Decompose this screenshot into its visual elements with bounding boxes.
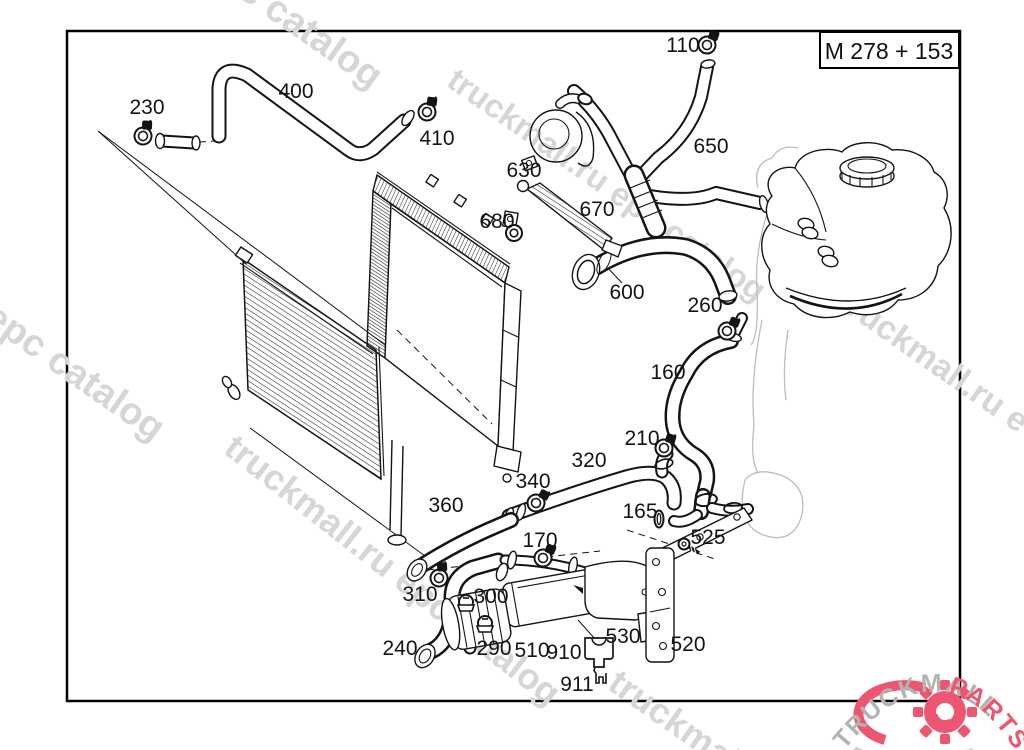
- part-label-630[interactable]: 630: [506, 159, 541, 182]
- part-label-290[interactable]: 290: [476, 637, 511, 660]
- part-label-600[interactable]: 600: [609, 281, 644, 304]
- part-label-910[interactable]: 910: [546, 641, 581, 664]
- part-label-650[interactable]: 650: [693, 135, 728, 158]
- part-label-400[interactable]: 400: [278, 80, 313, 103]
- part-label-680[interactable]: 680: [479, 210, 514, 233]
- part-label-340[interactable]: 340: [515, 470, 550, 493]
- part-label-170[interactable]: 170: [522, 529, 557, 552]
- title-box: M 278 + 153: [820, 32, 959, 68]
- part-label-520[interactable]: 520: [670, 633, 705, 656]
- part-label-165[interactable]: 165: [622, 500, 657, 523]
- part-label-310[interactable]: 310: [402, 583, 437, 606]
- clip-icon: [458, 595, 474, 611]
- clip-icon: [477, 616, 493, 632]
- part-label-300[interactable]: 300: [473, 585, 508, 608]
- part-label-230[interactable]: 230: [129, 96, 164, 119]
- engine-code: M 278 + 153: [825, 38, 954, 64]
- part-label-320[interactable]: 320: [571, 449, 606, 472]
- part-label-210[interactable]: 210: [624, 427, 659, 450]
- epc-diagram-page: epc catalogtruckmall.ru epc catalogl epc…: [0, 0, 1024, 750]
- part-label-110[interactable]: 110: [666, 34, 699, 57]
- part-label-525[interactable]: 525: [690, 526, 725, 549]
- part-label-510[interactable]: 510: [514, 639, 549, 662]
- part-label-240[interactable]: 240: [382, 637, 417, 660]
- part-label-360[interactable]: 360: [428, 494, 463, 517]
- part-label-260[interactable]: 260: [687, 294, 722, 317]
- part-label-911[interactable]: 911: [560, 673, 593, 696]
- part-label-670[interactable]: 670: [579, 198, 614, 221]
- part-label-410[interactable]: 410: [419, 127, 454, 150]
- parts-diagram: epc catalogtruckmall.ru epc catalogl epc…: [0, 0, 1024, 750]
- part-label-530[interactable]: 530: [605, 625, 640, 648]
- part-label-160[interactable]: 160: [650, 361, 685, 384]
